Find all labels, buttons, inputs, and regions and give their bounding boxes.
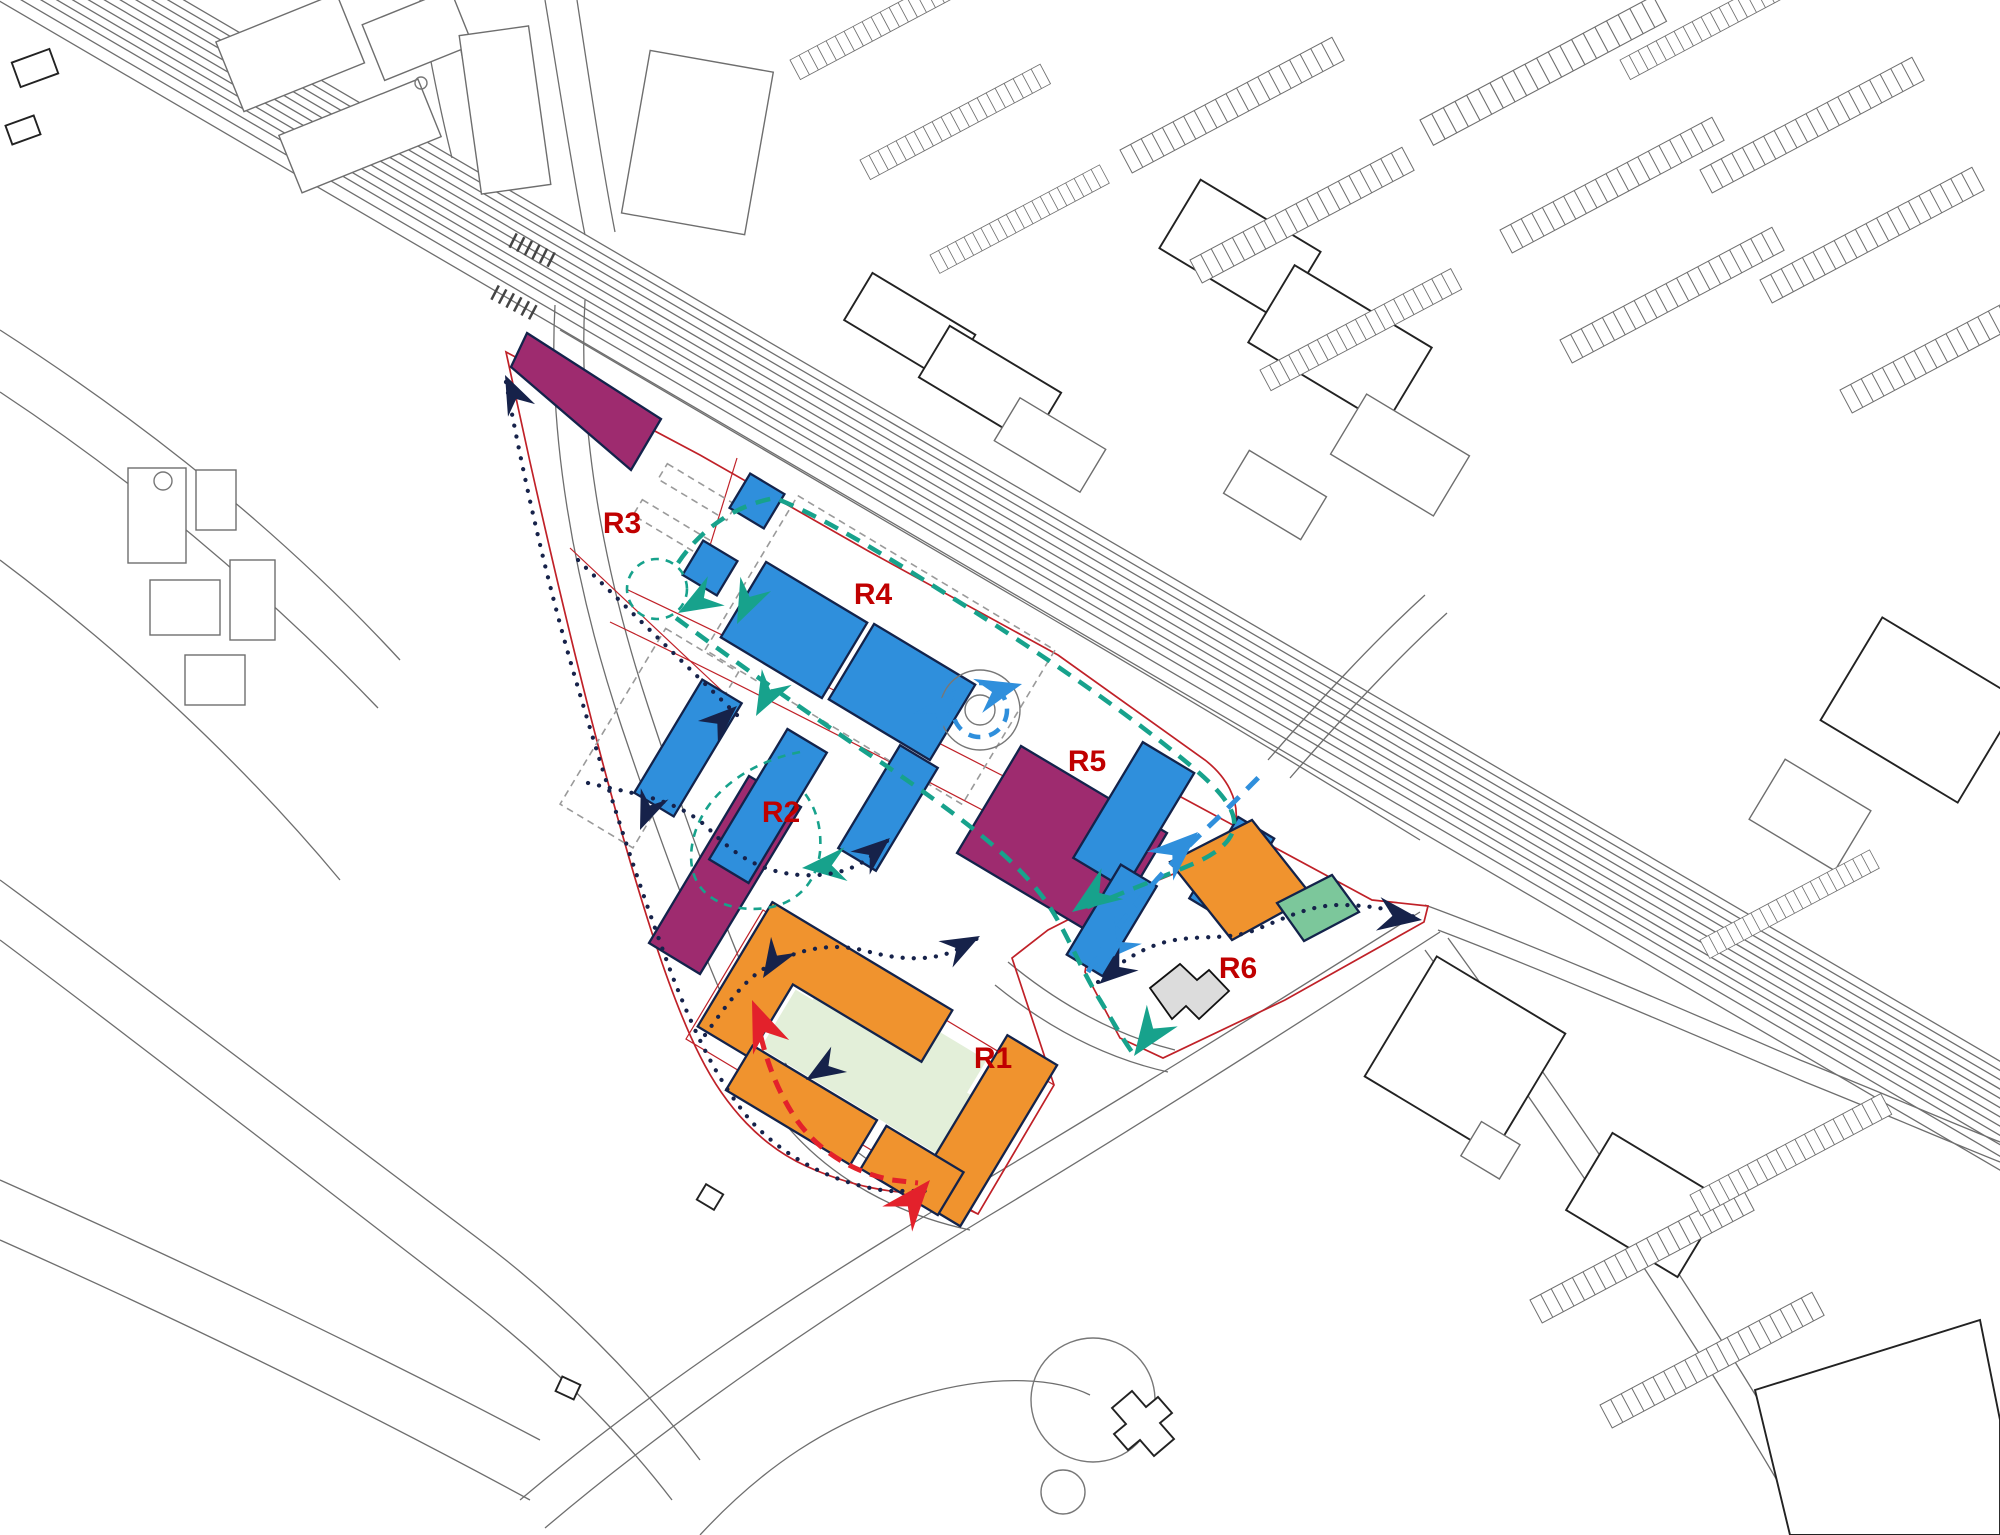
masterplan-map: R1 R2 R3 R4 R5 R6 xyxy=(0,0,2000,1535)
parcel-label-r4: R4 xyxy=(854,578,893,611)
existing-building-grey xyxy=(1150,964,1229,1019)
parcel-label-r6: R6 xyxy=(1219,952,1257,985)
parcel-r3-building xyxy=(511,333,661,470)
parcel-label-r1: R1 xyxy=(974,1042,1012,1075)
base-map xyxy=(0,0,2000,1535)
terrace-rows xyxy=(790,0,2000,1428)
teal-arrow-icon xyxy=(801,847,848,885)
blue-arrow-icon xyxy=(973,667,1026,713)
parcel-label-r3: R3 xyxy=(603,507,641,540)
navy-arrow-icon xyxy=(938,923,987,968)
parcel-label-r5: R5 xyxy=(1068,745,1106,778)
parcel-label-r2: R2 xyxy=(762,796,800,829)
